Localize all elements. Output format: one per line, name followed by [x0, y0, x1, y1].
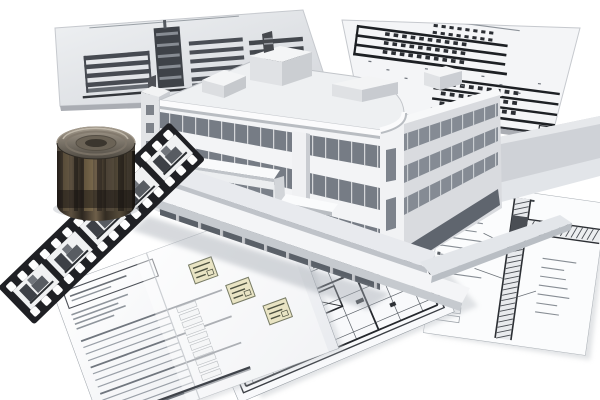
elevation-window — [452, 50, 457, 54]
elevation-window — [511, 111, 516, 115]
elevation-window — [441, 91, 446, 95]
elevation-window — [456, 34, 461, 38]
tower-window — [146, 123, 154, 133]
elevation-window — [417, 54, 422, 58]
elevation-window — [450, 93, 455, 97]
elevation-window — [419, 37, 424, 41]
elevation-window — [469, 85, 474, 89]
elevation-window — [462, 42, 467, 46]
elevation-window — [441, 25, 446, 29]
elevation-window — [459, 60, 464, 64]
elevation-window — [464, 35, 469, 39]
elevation-window — [409, 44, 414, 48]
elevation-window — [460, 51, 465, 55]
elevation-window — [410, 35, 415, 39]
architectural-visualization — [0, 0, 600, 400]
elevation-window — [481, 30, 486, 34]
elevation-window — [400, 52, 405, 56]
elevation-window — [480, 37, 485, 41]
corner-window — [386, 197, 396, 231]
elevation-window — [425, 56, 430, 60]
elevation-window — [391, 51, 396, 55]
elevation-window — [434, 57, 439, 61]
elevation-window — [512, 101, 517, 105]
elevation-window — [401, 43, 406, 47]
elevation-window — [489, 31, 494, 35]
elevation-window — [433, 24, 438, 28]
cylinder-dark-band — [57, 190, 135, 208]
panorama-cylinder — [53, 127, 139, 221]
roof-vent — [262, 31, 274, 53]
elevation-window — [502, 110, 507, 114]
elevation-window — [383, 50, 388, 54]
elevation-window — [408, 53, 413, 57]
elevation-window — [453, 41, 458, 45]
elevation-window — [478, 86, 483, 90]
elevation-window — [435, 48, 440, 52]
elevation-window — [392, 42, 397, 46]
elevation-window — [458, 94, 463, 98]
elevation-window — [465, 28, 470, 32]
elevation-window — [472, 36, 477, 40]
elevation-window — [448, 33, 453, 37]
elevation-window — [428, 38, 433, 42]
scene-canvas — [0, 0, 600, 400]
elevation-window — [426, 47, 431, 51]
tower-window — [146, 105, 154, 115]
elevation-window — [457, 27, 462, 31]
corner-window — [386, 148, 396, 182]
elevation-window — [488, 38, 493, 42]
elevation-window — [385, 32, 390, 36]
elevation-window — [418, 45, 423, 49]
elevation-window — [445, 40, 450, 44]
annotation-bullet — [437, 252, 440, 255]
elevation-window — [384, 41, 389, 45]
elevation-window — [473, 29, 478, 33]
elevation-window — [393, 33, 398, 37]
elevation-window — [436, 39, 441, 43]
elevation-window — [503, 100, 508, 104]
cylinder-core — [85, 139, 107, 147]
elevation-window — [443, 49, 448, 53]
elevation-window — [440, 32, 445, 36]
elevation-window — [433, 31, 438, 35]
elevation-window — [402, 34, 407, 38]
elevation-window — [504, 90, 509, 94]
elevation-window — [442, 58, 447, 62]
elevation-window — [451, 59, 456, 63]
elevation-window — [449, 26, 454, 30]
